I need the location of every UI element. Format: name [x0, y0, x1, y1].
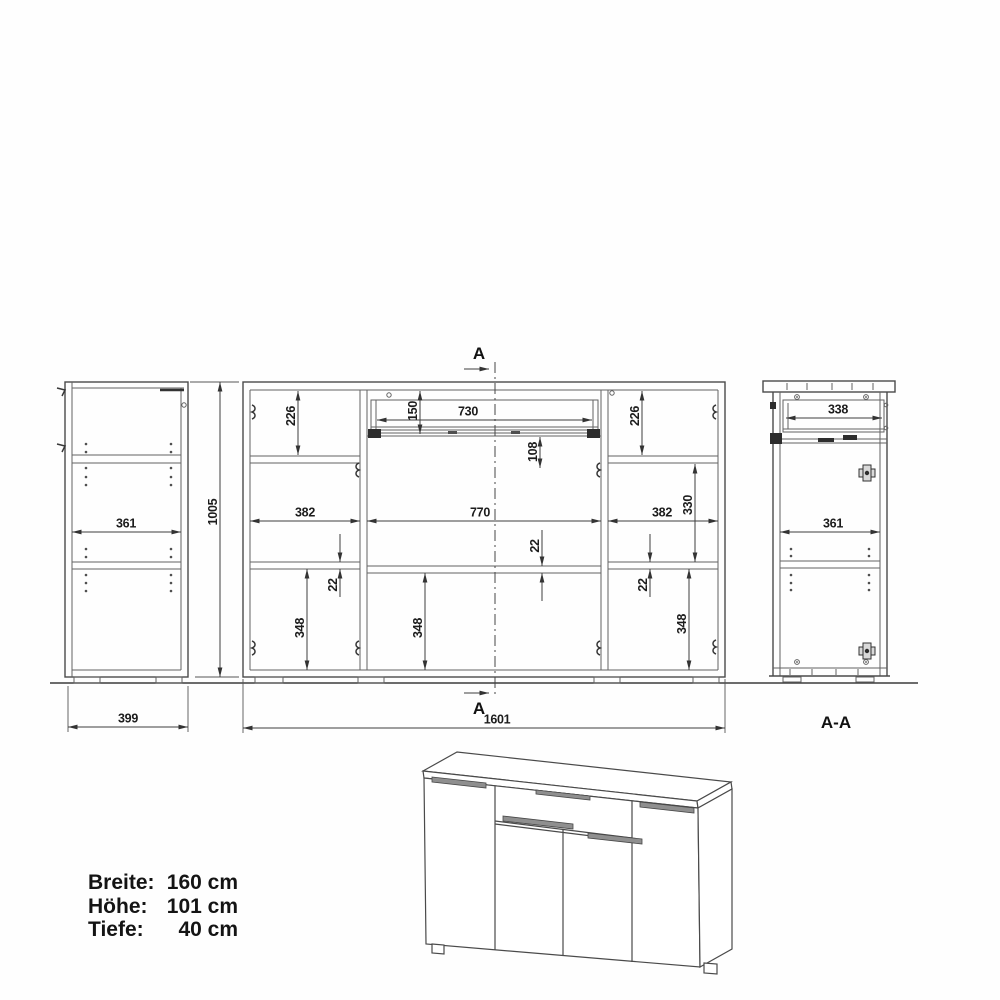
spec-value: 40 cm [178, 918, 238, 942]
spec-value: 160 cm [167, 871, 238, 895]
dim-front-top-right: 226 [628, 406, 642, 426]
hinge-fitting-top [859, 465, 875, 481]
hinge-fitting-bottom [859, 643, 875, 659]
dimensions-summary: Breite: 160 cm Höhe: 101 cm Tiefe: 40 cm [88, 871, 238, 942]
spec-row-height: Höhe: 101 cm [88, 895, 238, 919]
front-view: A A 226 226 150 730 108 382 770 382 330 … [243, 344, 725, 733]
dim-shelf-right: 22 [636, 578, 650, 592]
dim-total-width: 1601 [484, 713, 511, 727]
spec-row-width: Breite: 160 cm [88, 871, 238, 895]
dim-bottom-center: 348 [411, 618, 425, 638]
dim-width-right: 382 [652, 506, 672, 520]
dim-right-opening: 330 [681, 495, 695, 515]
dim-side-inner-width: 361 [116, 517, 136, 531]
dim-side-depth: 399 [118, 712, 138, 726]
spec-label: Breite: [88, 871, 155, 895]
dim-width-left: 382 [295, 506, 315, 520]
hinge-marks [252, 405, 716, 655]
dim-drawer-height: 150 [406, 401, 420, 421]
spec-label: Tiefe: [88, 918, 144, 942]
technical-drawing-sheet: 361 1005 399 [0, 0, 1000, 1000]
furniture-dimension-drawing: 361 1005 399 [0, 0, 1000, 1000]
dim-bottom-right: 348 [675, 614, 689, 634]
dim-drawer-gap: 108 [526, 442, 540, 462]
side-view: 361 1005 399 [57, 382, 239, 732]
dim-shelf-center: 22 [528, 539, 542, 553]
dim-front-top-left: 226 [284, 406, 298, 426]
spec-row-depth: Tiefe: 40 cm [88, 918, 238, 942]
section-view-title: A-A [821, 713, 851, 732]
drawer-front [367, 400, 601, 438]
dim-drawer-width: 730 [458, 405, 478, 419]
dim-shelf-left: 22 [326, 578, 340, 592]
section-view: 338 361 [763, 381, 895, 732]
spec-label: Höhe: [88, 895, 148, 919]
shelf-pin-holes [790, 548, 871, 592]
section-marker-top: A [473, 344, 485, 363]
product-drawing [423, 752, 732, 974]
dim-side-height: 1005 [206, 498, 220, 525]
dim-section-drawer-depth: 338 [828, 403, 848, 417]
dim-section-inner-depth: 361 [823, 517, 843, 531]
dim-bottom-left: 348 [293, 618, 307, 638]
dim-width-center: 770 [470, 506, 490, 520]
spec-value: 101 cm [167, 895, 238, 919]
